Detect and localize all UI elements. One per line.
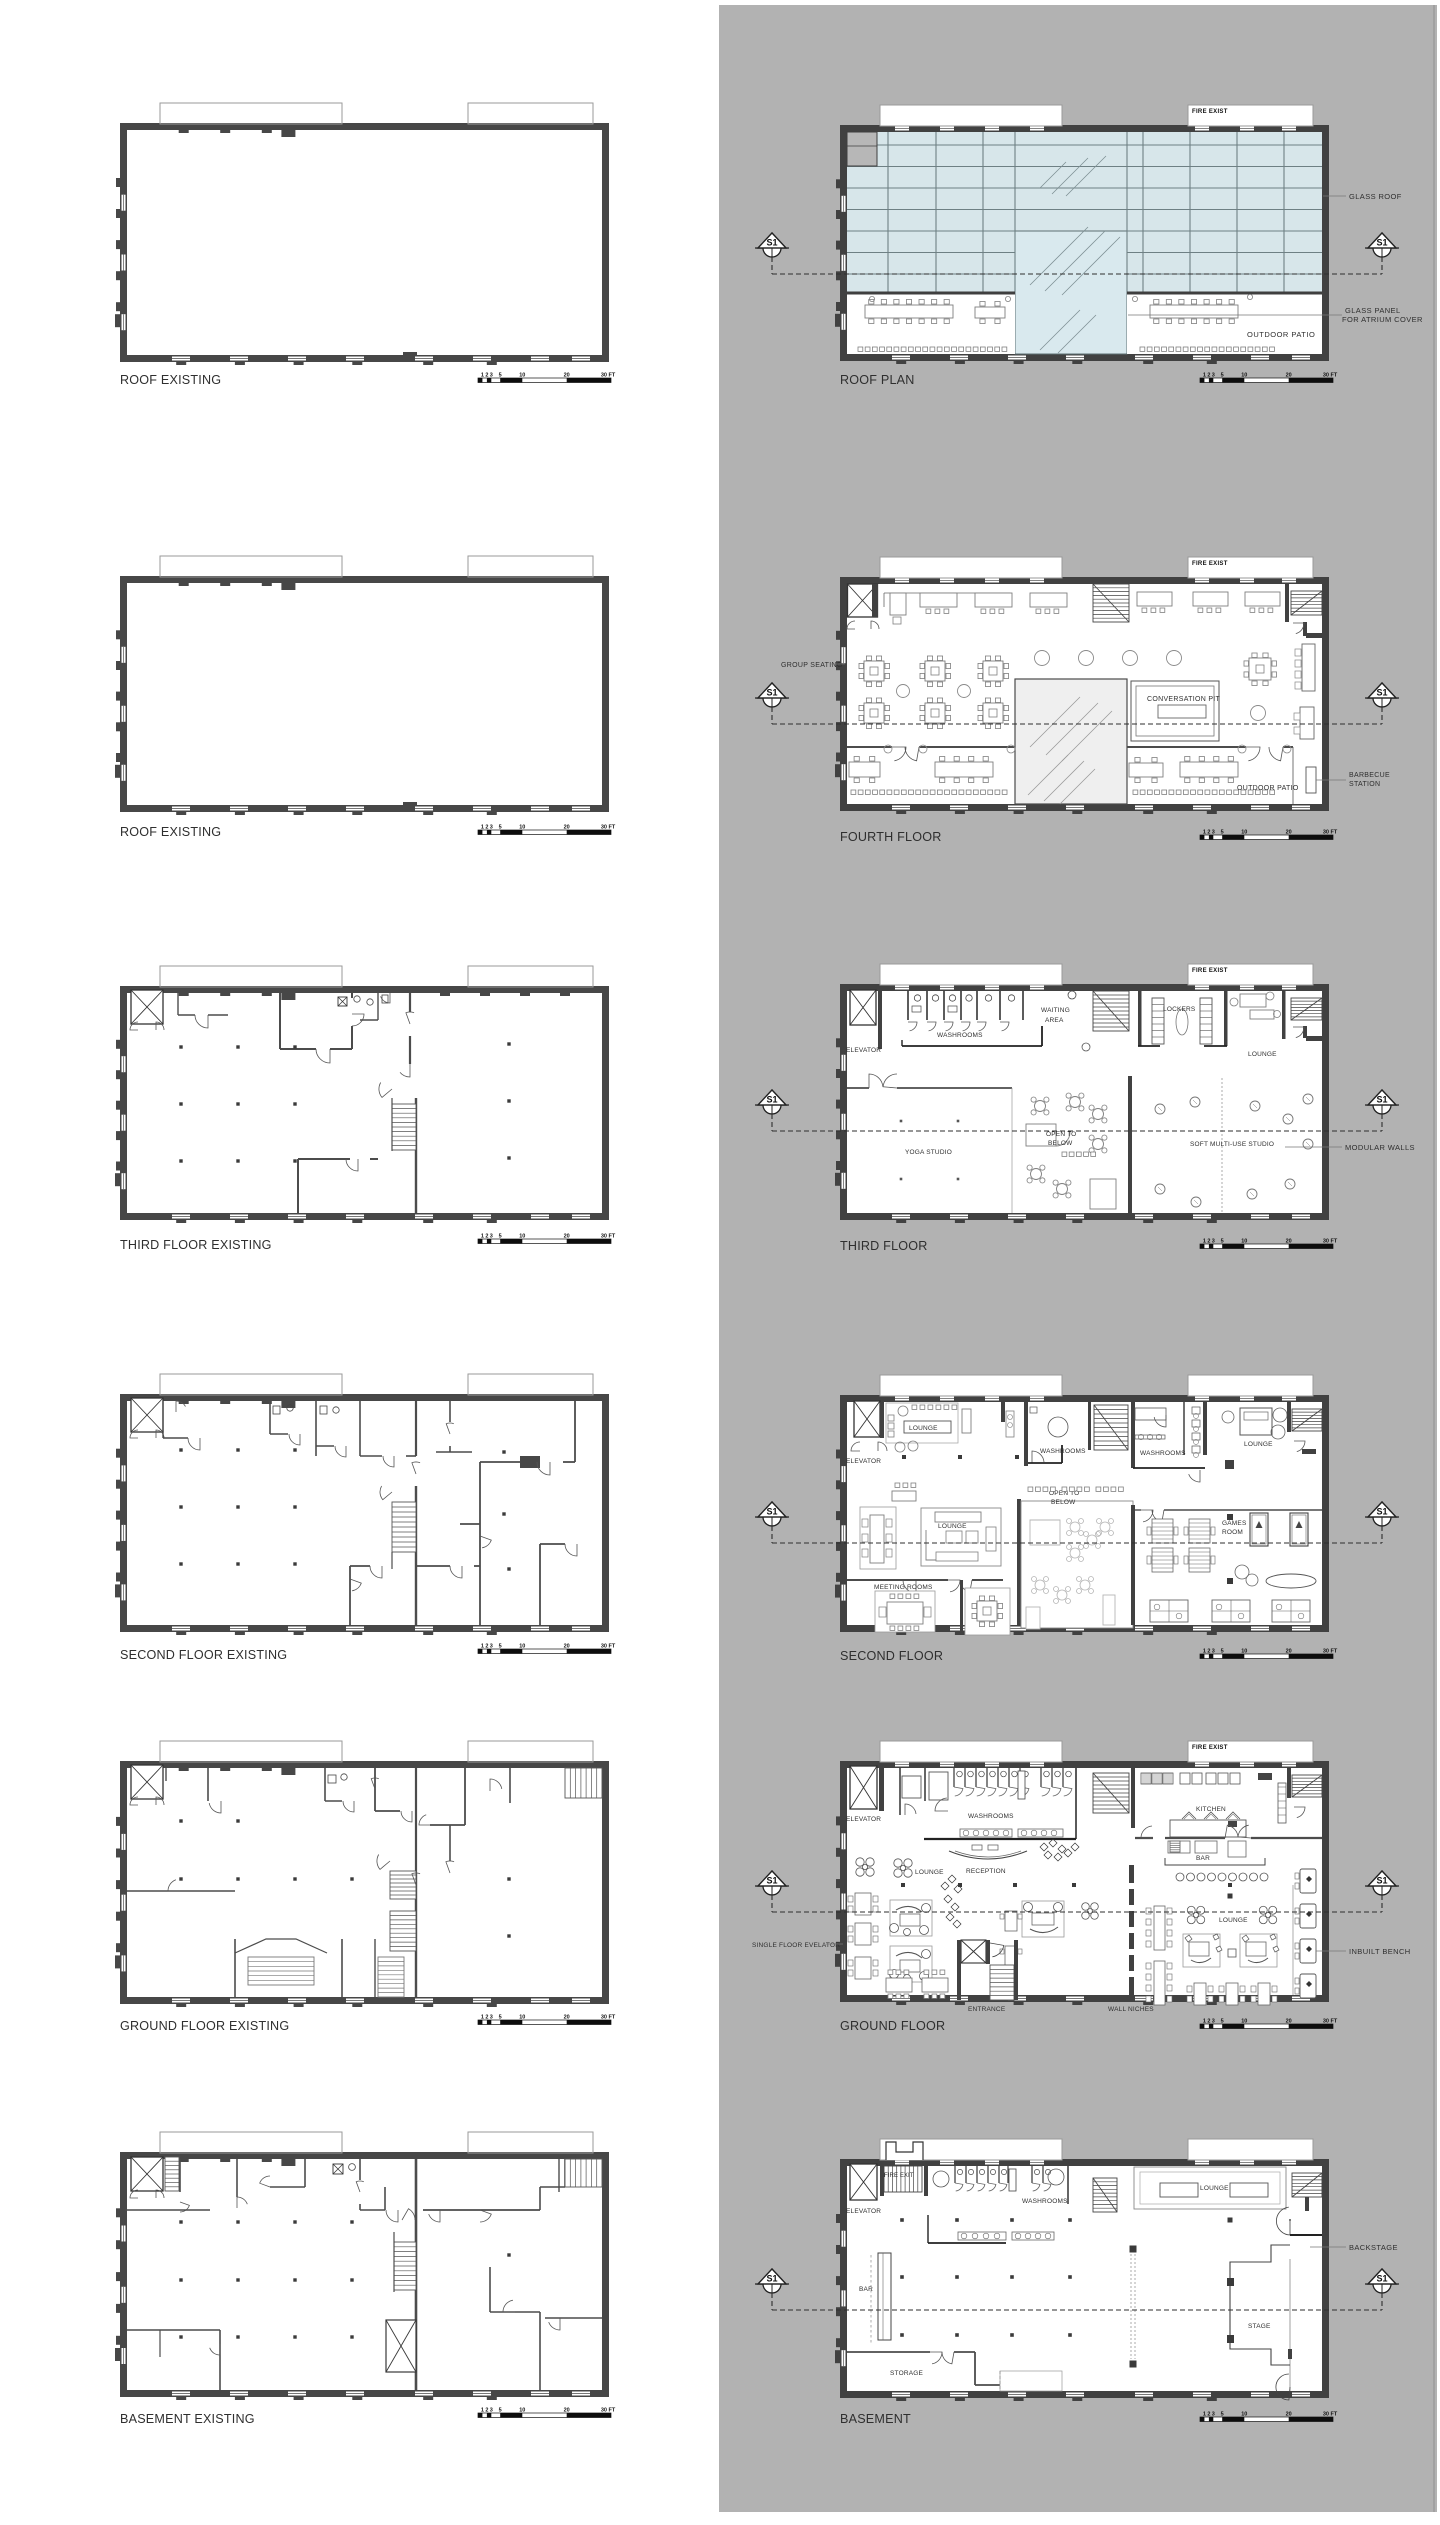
svg-text:FIRE EXIT: FIRE EXIT	[884, 2173, 914, 2179]
svg-text:10: 10	[1241, 1649, 1247, 1655]
svg-text:STORAGE: STORAGE	[890, 2370, 924, 2377]
svg-text:GROUP SEATING: GROUP SEATING	[781, 662, 843, 669]
svg-text:2: 2	[1207, 2019, 1210, 2025]
svg-text:2: 2	[485, 373, 488, 379]
svg-text:2: 2	[485, 1234, 488, 1240]
svg-text:BELOW: BELOW	[1048, 1140, 1073, 1147]
svg-text:YOGA STUDIO: YOGA STUDIO	[905, 1149, 952, 1156]
svg-text:20: 20	[1286, 830, 1292, 836]
svg-text:2: 2	[1207, 830, 1210, 836]
svg-text:FIRE EXIST: FIRE EXIST	[1192, 968, 1228, 974]
svg-text:LOUNGE: LOUNGE	[915, 1869, 944, 1876]
svg-text:3: 3	[490, 1644, 493, 1650]
svg-text:BASEMENT EXISTING: BASEMENT EXISTING	[120, 2412, 255, 2426]
svg-text:FOURTH FLOOR: FOURTH FLOOR	[840, 830, 942, 844]
svg-text:OUTDOOR PATIO: OUTDOOR PATIO	[1237, 785, 1299, 792]
svg-text:MODULAR WALLS: MODULAR WALLS	[1345, 1143, 1415, 1152]
svg-text:BASEMENT: BASEMENT	[840, 2412, 911, 2426]
svg-text:3: 3	[1212, 830, 1215, 836]
svg-text:3: 3	[490, 2408, 493, 2414]
svg-text:AREA: AREA	[1045, 1017, 1064, 1024]
svg-text:2: 2	[1207, 1239, 1210, 1245]
svg-text:1: 1	[481, 2015, 484, 2021]
svg-text:30 FT: 30 FT	[1323, 373, 1338, 379]
svg-text:30 FT: 30 FT	[1323, 830, 1338, 836]
svg-text:10: 10	[519, 825, 525, 831]
svg-text:ELEVATOR: ELEVATOR	[846, 1816, 881, 1823]
svg-text:5: 5	[1221, 830, 1224, 836]
svg-text:5: 5	[499, 2015, 502, 2021]
svg-text:1: 1	[481, 2408, 484, 2414]
svg-text:1: 1	[1203, 2019, 1206, 2025]
svg-text:30 FT: 30 FT	[1323, 1649, 1338, 1655]
svg-text:2: 2	[485, 2015, 488, 2021]
svg-text:10: 10	[519, 373, 525, 379]
svg-text:3: 3	[490, 1234, 493, 1240]
svg-text:FIRE EXIST: FIRE EXIST	[1192, 561, 1228, 567]
svg-text:5: 5	[499, 825, 502, 831]
svg-text:3: 3	[1212, 2412, 1215, 2418]
svg-text:30 FT: 30 FT	[601, 2408, 616, 2414]
svg-text:30 FT: 30 FT	[601, 1234, 616, 1240]
svg-text:S1: S1	[766, 238, 777, 248]
svg-text:GLASS PANEL: GLASS PANEL	[1345, 306, 1401, 315]
svg-text:30 FT: 30 FT	[601, 825, 616, 831]
svg-text:STATION: STATION	[1349, 781, 1380, 788]
svg-text:1: 1	[1203, 1239, 1206, 1245]
svg-text:S1: S1	[766, 1507, 777, 1517]
svg-text:STAGE: STAGE	[1248, 2323, 1271, 2330]
svg-text:FIRE EXIST: FIRE EXIST	[1192, 1745, 1228, 1751]
svg-text:GLASS ROOF: GLASS ROOF	[1349, 192, 1402, 201]
svg-text:10: 10	[1241, 2412, 1247, 2418]
svg-text:CONVERSATION PIT: CONVERSATION PIT	[1147, 696, 1221, 703]
svg-text:BACKSTAGE: BACKSTAGE	[1349, 2243, 1398, 2252]
svg-text:FOR ATRIUM COVER: FOR ATRIUM COVER	[1342, 315, 1423, 324]
svg-text:30 FT: 30 FT	[1323, 2412, 1338, 2418]
svg-text:INBUILT BENCH: INBUILT BENCH	[1349, 1947, 1411, 1956]
svg-text:5: 5	[1221, 1649, 1224, 1655]
svg-text:3: 3	[1212, 1239, 1215, 1245]
svg-text:10: 10	[1241, 1239, 1247, 1245]
svg-text:30 FT: 30 FT	[601, 1644, 616, 1650]
svg-text:ROOM: ROOM	[1222, 1529, 1243, 1536]
svg-text:S1: S1	[1376, 238, 1387, 248]
svg-text:2: 2	[485, 1644, 488, 1650]
svg-text:10: 10	[519, 1644, 525, 1650]
svg-text:10: 10	[519, 1234, 525, 1240]
svg-text:10: 10	[1241, 830, 1247, 836]
svg-text:FIRE EXIST: FIRE EXIST	[1192, 109, 1228, 115]
svg-text:ELEVATOR: ELEVATOR	[846, 2208, 881, 2215]
svg-text:20: 20	[1286, 2412, 1292, 2418]
svg-text:10: 10	[1241, 2019, 1247, 2025]
svg-text:3: 3	[490, 825, 493, 831]
svg-text:3: 3	[1212, 373, 1215, 379]
svg-text:S1: S1	[766, 2274, 777, 2284]
svg-text:10: 10	[519, 2408, 525, 2414]
svg-text:2: 2	[485, 2408, 488, 2414]
svg-text:OPEN TO: OPEN TO	[1046, 1131, 1076, 1138]
svg-text:S1: S1	[1376, 1507, 1387, 1517]
svg-text:20: 20	[1286, 2019, 1292, 2025]
svg-text:ROOF EXISTING: ROOF EXISTING	[120, 373, 221, 387]
svg-text:2: 2	[1207, 2412, 1210, 2418]
svg-text:20: 20	[564, 2015, 570, 2021]
svg-text:SECOND FLOOR EXISTING: SECOND FLOOR EXISTING	[120, 1648, 287, 1662]
svg-text:20: 20	[564, 1644, 570, 1650]
svg-text:3: 3	[1212, 1649, 1215, 1655]
svg-text:WASHROOMS: WASHROOMS	[1022, 2198, 1068, 2205]
svg-text:1: 1	[1203, 830, 1206, 836]
svg-text:LOUNGE: LOUNGE	[1219, 1917, 1248, 1924]
svg-text:LOUNGE: LOUNGE	[909, 1425, 938, 1432]
svg-text:2: 2	[485, 825, 488, 831]
svg-text:BELOW: BELOW	[1051, 1499, 1076, 1506]
svg-text:S1: S1	[1376, 1876, 1387, 1886]
svg-text:20: 20	[1286, 373, 1292, 379]
svg-text:5: 5	[1221, 373, 1224, 379]
svg-text:LOUNGE: LOUNGE	[938, 1523, 967, 1530]
svg-text:BAR: BAR	[1196, 1855, 1210, 1862]
svg-text:1: 1	[1203, 2412, 1206, 2418]
svg-text:S1: S1	[766, 1876, 777, 1886]
svg-text:1: 1	[1203, 373, 1206, 379]
svg-text:LOUNGE: LOUNGE	[1200, 2185, 1229, 2192]
svg-text:S1: S1	[766, 1095, 777, 1105]
svg-text:2: 2	[1207, 373, 1210, 379]
svg-text:3: 3	[1212, 2019, 1215, 2025]
svg-text:LOUNGE: LOUNGE	[1244, 1441, 1273, 1448]
svg-text:20: 20	[1286, 1239, 1292, 1245]
svg-text:ROOF PLAN: ROOF PLAN	[840, 373, 915, 387]
svg-text:THIRD FLOOR EXISTING: THIRD FLOOR EXISTING	[120, 1238, 272, 1252]
svg-text:20: 20	[564, 825, 570, 831]
svg-text:2: 2	[1207, 1649, 1210, 1655]
svg-text:RECEPTION: RECEPTION	[966, 1868, 1006, 1875]
svg-text:S1: S1	[1376, 2274, 1387, 2284]
svg-text:S1: S1	[766, 688, 777, 698]
svg-text:WASHROOMS: WASHROOMS	[1040, 1448, 1086, 1455]
svg-text:5: 5	[499, 2408, 502, 2414]
svg-text:SOFT MULTI-USE STUDIO: SOFT MULTI-USE STUDIO	[1190, 1141, 1274, 1148]
svg-text:20: 20	[564, 373, 570, 379]
svg-text:5: 5	[1221, 2412, 1224, 2418]
svg-text:BARBECUE: BARBECUE	[1349, 772, 1390, 779]
svg-text:ROOF EXISTING: ROOF EXISTING	[120, 825, 221, 839]
svg-text:LOCKERS: LOCKERS	[1163, 1006, 1196, 1013]
svg-text:5: 5	[499, 373, 502, 379]
svg-text:ELEVATOR: ELEVATOR	[846, 1047, 881, 1054]
svg-text:30 FT: 30 FT	[601, 2015, 616, 2021]
svg-text:LOUNGE: LOUNGE	[1248, 1051, 1277, 1058]
svg-text:3: 3	[490, 2015, 493, 2021]
svg-text:GROUND FLOOR EXISTING: GROUND FLOOR EXISTING	[120, 2019, 289, 2033]
svg-text:1: 1	[481, 825, 484, 831]
svg-text:5: 5	[1221, 1239, 1224, 1245]
svg-text:10: 10	[1241, 373, 1247, 379]
svg-text:5: 5	[499, 1234, 502, 1240]
svg-text:GAMES: GAMES	[1222, 1520, 1247, 1527]
svg-text:WALL NICHES: WALL NICHES	[1108, 2006, 1154, 2013]
svg-text:WASHROOMS: WASHROOMS	[1140, 1450, 1186, 1457]
svg-text:30 FT: 30 FT	[1323, 2019, 1338, 2025]
svg-text:5: 5	[499, 1644, 502, 1650]
svg-text:1: 1	[1203, 1649, 1206, 1655]
svg-text:THIRD FLOOR: THIRD FLOOR	[840, 1239, 928, 1253]
svg-text:S1: S1	[1376, 688, 1387, 698]
svg-text:30 FT: 30 FT	[601, 373, 616, 379]
svg-text:1: 1	[481, 1234, 484, 1240]
svg-text:3: 3	[490, 373, 493, 379]
svg-text:30 FT: 30 FT	[1323, 1239, 1338, 1245]
svg-text:WASHROOMS: WASHROOMS	[968, 1813, 1014, 1820]
svg-text:WASHROOMS: WASHROOMS	[937, 1032, 983, 1039]
svg-text:GROUND FLOOR: GROUND FLOOR	[840, 2019, 945, 2033]
svg-text:ENTRANCE: ENTRANCE	[968, 2006, 1006, 2013]
svg-text:MEETING ROOMS: MEETING ROOMS	[874, 1584, 933, 1591]
svg-text:SECOND FLOOR: SECOND FLOOR	[840, 1649, 943, 1663]
svg-text:5: 5	[1221, 2019, 1224, 2025]
svg-text:20: 20	[1286, 1649, 1292, 1655]
svg-text:20: 20	[564, 1234, 570, 1240]
svg-text:1: 1	[481, 373, 484, 379]
svg-text:SINGLE FLOOR EVELATOR: SINGLE FLOOR EVELATOR	[752, 1942, 840, 1949]
svg-text:WAITING: WAITING	[1041, 1007, 1070, 1014]
svg-text:20: 20	[564, 2408, 570, 2414]
svg-text:10: 10	[519, 2015, 525, 2021]
svg-text:OUTDOOR PATIO: OUTDOOR PATIO	[1247, 330, 1315, 339]
svg-text:1: 1	[481, 1644, 484, 1650]
svg-text:S1: S1	[1376, 1095, 1387, 1105]
svg-text:ELEVATOR: ELEVATOR	[846, 1458, 881, 1465]
